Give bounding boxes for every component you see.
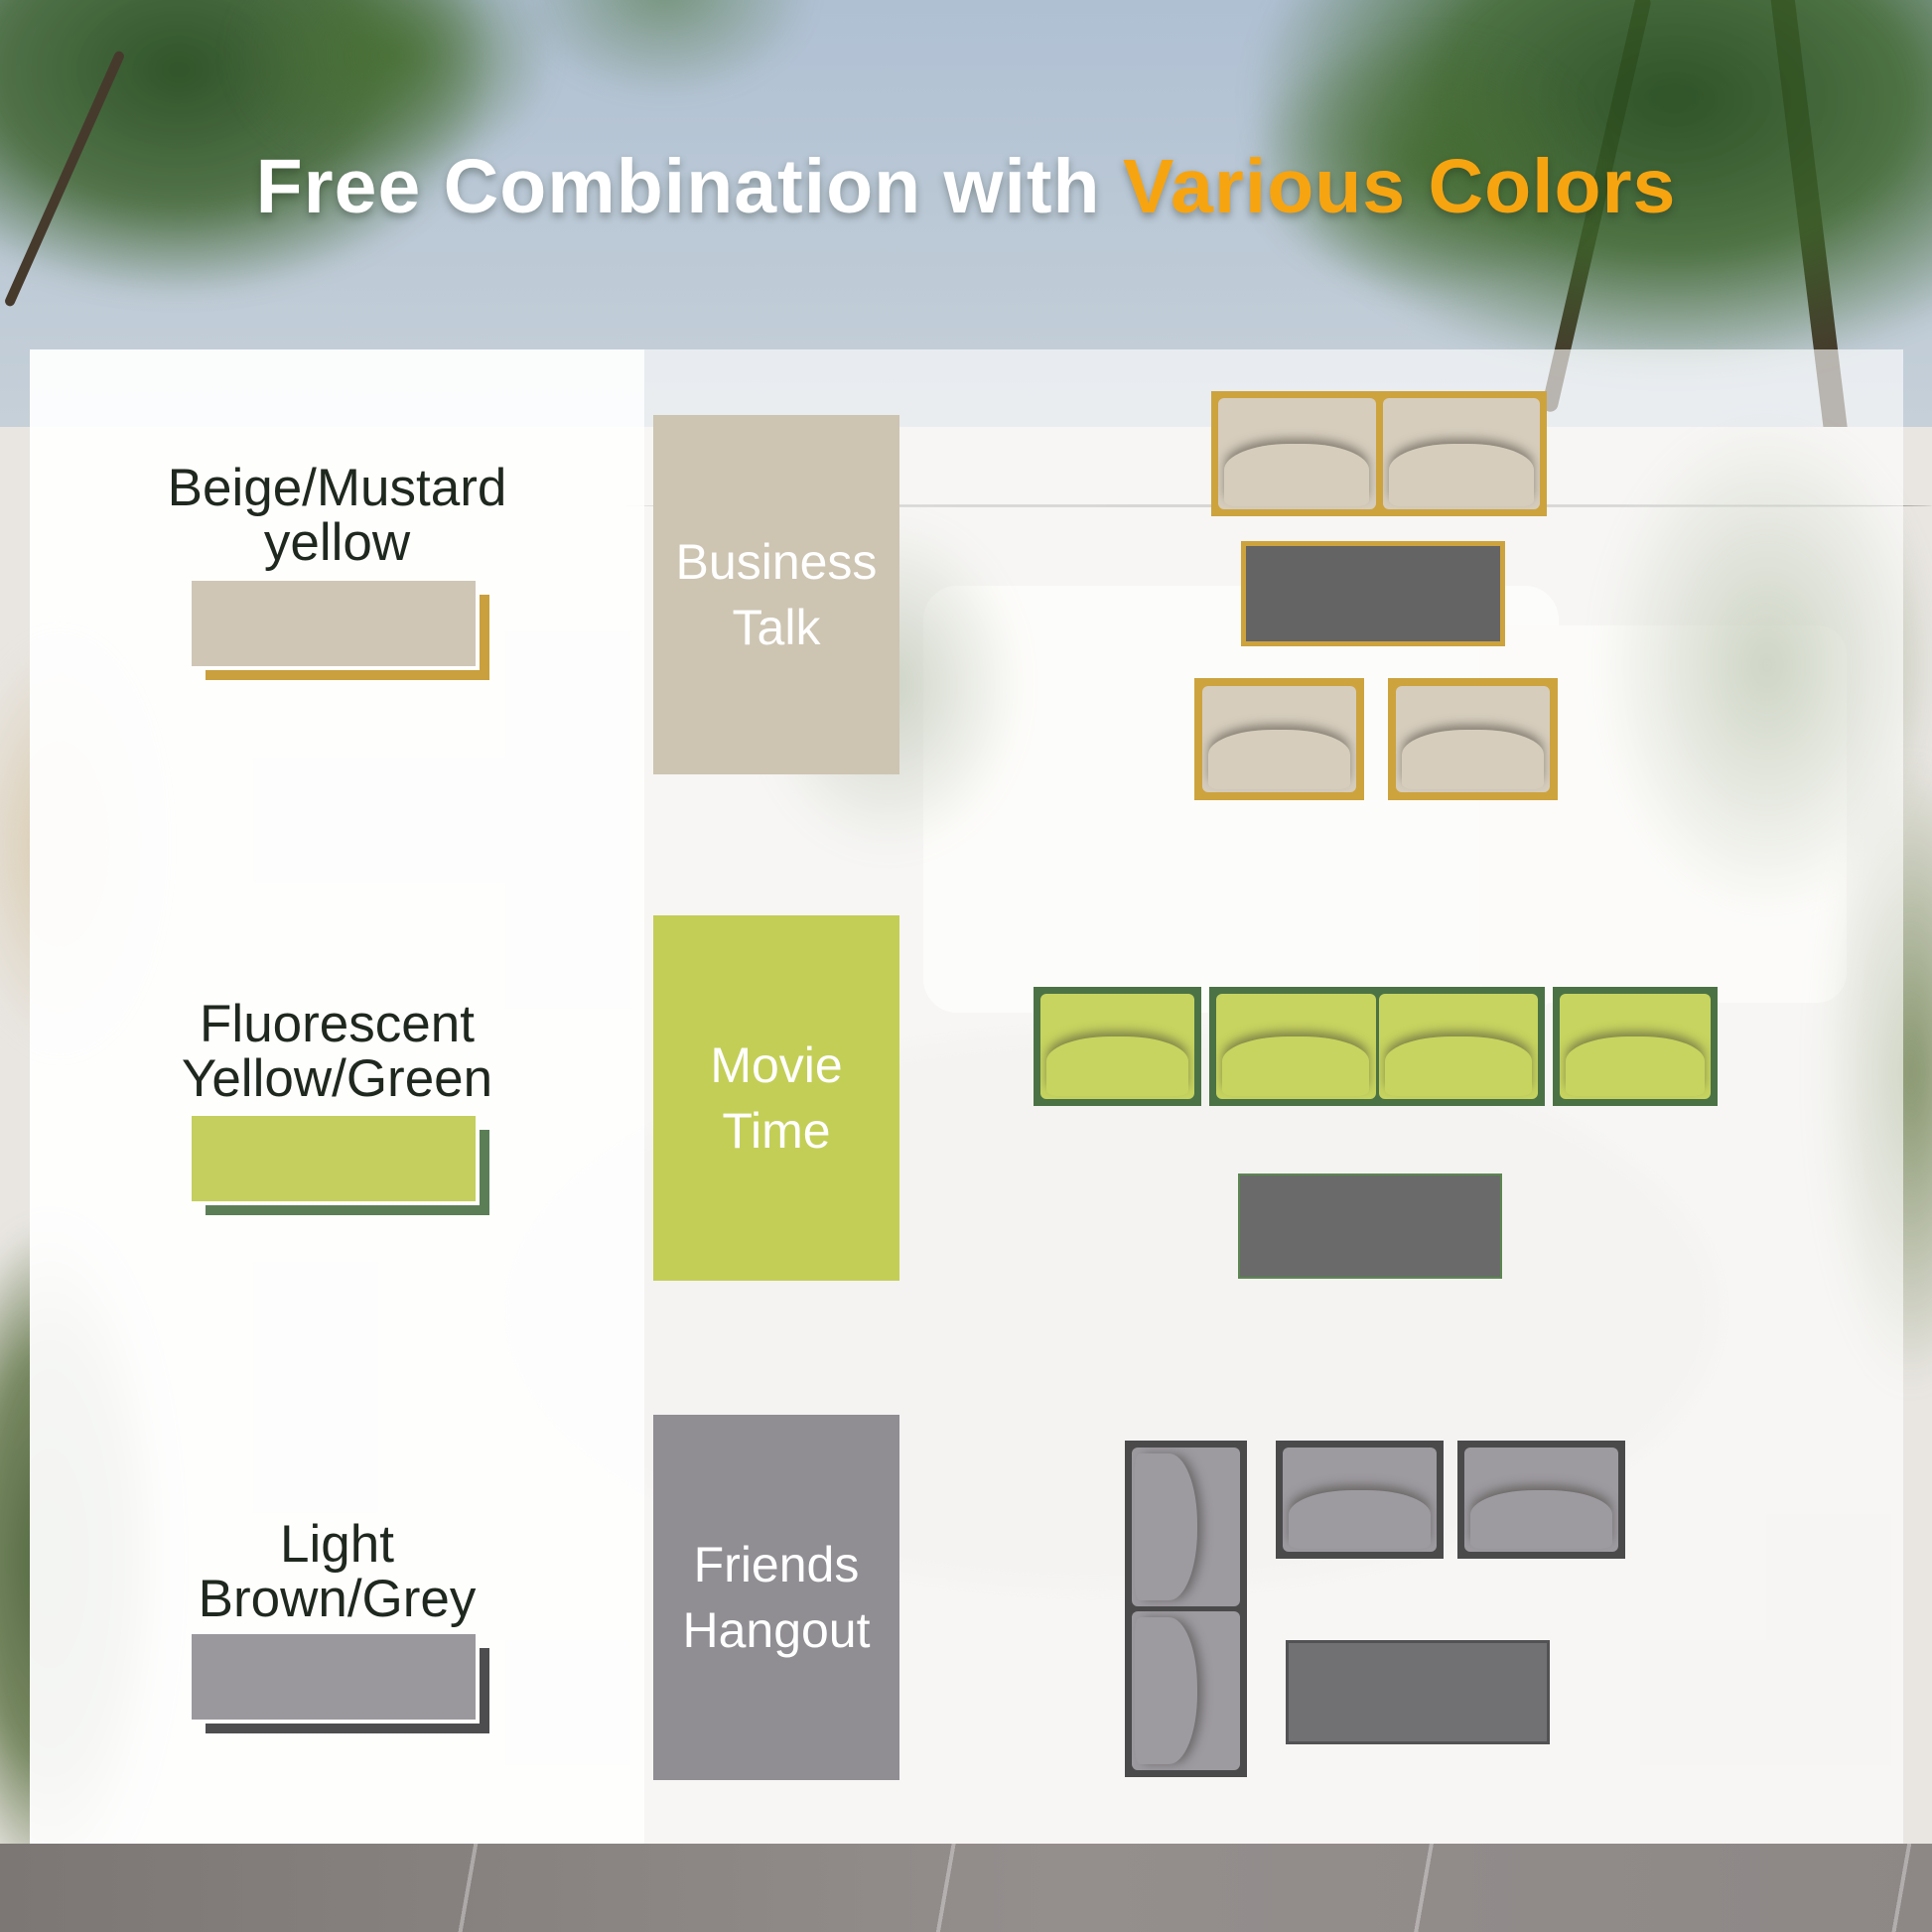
- color-label-line: Fluorescent: [30, 997, 644, 1051]
- seat-cushion-graphic: [1135, 1453, 1197, 1599]
- swatch-fluorescent-green: [192, 1116, 476, 1201]
- color-label-line: Beige/Mustard: [30, 461, 644, 515]
- scene-label-line: Movie: [710, 1033, 842, 1098]
- sofa-cushion: [1216, 994, 1376, 1099]
- seat-cushion-graphic: [1385, 1036, 1532, 1095]
- scene-label-line: Talk: [733, 595, 821, 660]
- color-label-line: Yellow/Green: [30, 1051, 644, 1106]
- business-armless-chair-left: [1194, 678, 1364, 800]
- business-coffee-table: [1241, 541, 1505, 646]
- seat-cushion-graphic: [1135, 1617, 1197, 1763]
- movie-coffee-table: [1238, 1173, 1502, 1279]
- sofa-cushion: [1383, 398, 1541, 509]
- seat-cushion-graphic: [1222, 1036, 1369, 1095]
- color-label-light-brown-grey: Light Brown/Grey: [30, 1517, 644, 1626]
- stone-pavement: [0, 1844, 1932, 1932]
- title-orange-text: Various Colors: [1123, 144, 1676, 229]
- sofa-cushion: [1202, 686, 1356, 792]
- swatch-light-brown-grey: [192, 1634, 476, 1720]
- sofa-cushion: [1132, 1611, 1240, 1770]
- scene-block-business-talk: Business Talk: [653, 415, 899, 774]
- scene-block-friends-hangout: Friends Hangout: [653, 1415, 899, 1780]
- friends-sofa-vertical: [1125, 1441, 1247, 1777]
- seat-cushion-graphic: [1566, 1036, 1705, 1095]
- seat-cushion-graphic: [1224, 444, 1369, 506]
- friends-coffee-table: [1286, 1640, 1550, 1744]
- seat-cushion-graphic: [1402, 730, 1544, 789]
- sofa-cushion: [1040, 994, 1194, 1099]
- sofa-cushion: [1560, 994, 1711, 1099]
- friends-armless-chair-right: [1457, 1441, 1625, 1559]
- swatch-beige-mustard: [192, 581, 476, 666]
- color-label-beige-mustard: Beige/Mustard yellow: [30, 461, 644, 570]
- scene-label-line: Friends: [694, 1532, 860, 1597]
- friends-armless-chair-left: [1276, 1441, 1444, 1559]
- sofa-cushion: [1379, 994, 1539, 1099]
- sofa-cushion: [1132, 1448, 1240, 1606]
- product-infographic: Free Combination with Various Colors Bei…: [0, 0, 1932, 1932]
- scene-label-line: Time: [722, 1098, 830, 1164]
- movie-armless-chair-right: [1553, 987, 1718, 1106]
- scene-label-line: Hangout: [682, 1597, 870, 1663]
- movie-armless-chair-left: [1034, 987, 1201, 1106]
- scene-label-line: Business: [676, 529, 878, 595]
- seat-cushion-graphic: [1289, 1490, 1431, 1549]
- scene-block-movie-time: Movie Time: [653, 915, 899, 1281]
- business-sofa-loveseat: [1211, 391, 1547, 516]
- movie-sofa-loveseat: [1209, 987, 1545, 1106]
- content-panel: Beige/Mustard yellow Fluorescent Yellow/…: [30, 349, 1903, 1844]
- color-label-line: Brown/Grey: [30, 1572, 644, 1626]
- business-armless-chair-right: [1388, 678, 1558, 800]
- sofa-cushion: [1283, 1448, 1437, 1552]
- color-label-fluorescent-green: Fluorescent Yellow/Green: [30, 997, 644, 1106]
- page-title: Free Combination with Various Colors: [0, 149, 1932, 225]
- sofa-cushion: [1464, 1448, 1618, 1552]
- color-label-line: yellow: [30, 515, 644, 570]
- sofa-cushion: [1396, 686, 1550, 792]
- seat-cushion-graphic: [1046, 1036, 1188, 1095]
- title-white-text: Free Combination with: [256, 144, 1101, 229]
- color-label-line: Light: [30, 1517, 644, 1572]
- seat-cushion-graphic: [1389, 444, 1534, 506]
- seat-cushion-graphic: [1208, 730, 1350, 789]
- seat-cushion-graphic: [1470, 1490, 1612, 1549]
- sofa-cushion: [1218, 398, 1376, 509]
